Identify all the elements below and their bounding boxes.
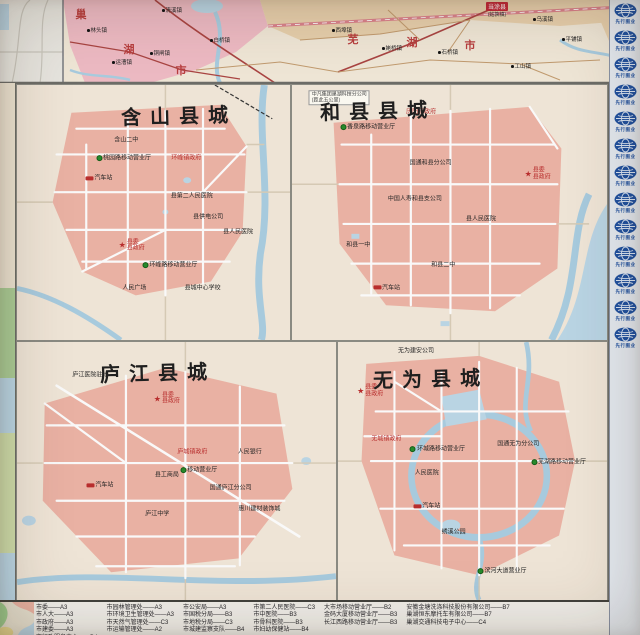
star-icon: ★	[119, 241, 126, 251]
town-label: 林头镇	[87, 26, 107, 34]
publisher-badge: 先行图业	[610, 111, 640, 133]
legend-item: 市国税分局——B3	[183, 612, 244, 619]
mobile-dot-icon	[96, 155, 102, 161]
town-label: 平铺镇	[562, 35, 582, 43]
station-rect-icon	[413, 504, 421, 508]
globe-logo-icon	[614, 219, 637, 234]
town-label: 姥桥镇	[382, 44, 402, 52]
publisher-badge: 先行图业	[610, 138, 640, 160]
adjacent-sheet-edge	[0, 83, 15, 601]
edge-water-patch-2	[0, 553, 15, 601]
inset-row-bottom: 庐江县城 庐江医院驻地★县委县政府庐城镇政府人民银行移动营业厅县工商局汽车站国通…	[16, 341, 608, 601]
legend-item: 金码大厦移动营业厅——B3	[324, 612, 397, 619]
star-icon: ★	[154, 394, 161, 404]
globe-logo-icon	[614, 192, 637, 207]
globe-logo-icon	[614, 138, 637, 153]
publisher-badge-label: 先行图业	[616, 181, 636, 187]
region-name-char: 芜	[348, 31, 359, 47]
town-dot-icon	[382, 47, 385, 50]
station-rect-icon	[373, 286, 381, 290]
publisher-badge: 先行图业	[610, 84, 640, 106]
town-label: 乌溪镇	[533, 15, 553, 23]
publisher-badge: 先行图业	[610, 192, 640, 214]
map-label: 国通和县分公司	[410, 160, 452, 167]
station-rect-icon	[85, 176, 93, 180]
publisher-badge: 先行图业	[610, 165, 640, 187]
legend-item: 市中医院——B3	[253, 612, 315, 619]
map-label: 中国人寿和县支公司	[388, 196, 442, 203]
legend-item: 市妇幼保健站——B4	[253, 627, 315, 634]
inset-row-top: 含山县城 含山二中桃园路移动营业厅汽车站环峰镇政府县第二人民医院县供电公司★县委…	[16, 84, 608, 341]
publisher-badge: 先行图业	[610, 3, 640, 25]
town-dot-icon	[112, 61, 115, 64]
region-name-char: 湖	[407, 34, 418, 50]
town-dot-icon	[150, 52, 153, 55]
map-label: 和县二中	[431, 262, 455, 269]
publisher-badge-label: 先行图业	[616, 46, 636, 52]
town-gov-label: 庐城镇政府	[177, 449, 207, 456]
town-label: 运漕镇	[112, 58, 132, 66]
legend-item: 市建委——A3	[36, 627, 98, 634]
publisher-badge: 先行图业	[610, 327, 640, 349]
publisher-badge: 先行图业	[610, 30, 640, 52]
globe-logo-icon	[614, 111, 637, 126]
town-dot-icon	[438, 51, 441, 54]
map-label: 人民银行	[238, 449, 262, 456]
map-label: 绣溪公园	[442, 529, 466, 536]
town-dot-icon	[210, 39, 213, 42]
map-label: 国通庐江分公司	[210, 485, 252, 492]
publisher-badge-label: 先行图业	[616, 154, 636, 160]
panel-hanshan: 含山县城 含山二中桃园路移动营业厅汽车站环峰镇政府县第二人民医院县供电公司★县委…	[16, 84, 291, 341]
panel-title-hanshan: 含山县城	[120, 99, 237, 131]
globe-logo-icon	[614, 273, 637, 288]
publisher-badge: 先行图业	[610, 300, 640, 322]
publisher-badge: 先行图业	[610, 273, 640, 295]
town-label: 白桥镇	[210, 36, 230, 44]
town-dot-icon	[533, 18, 536, 21]
mobile-dot-icon	[531, 459, 537, 465]
panel-wuwei: 无为县城 无为建安公司★县委县政府无城镇政府环城路移动营业厅人民医院国通无为分公…	[337, 341, 608, 601]
legend-item: 市环境卫生管理处——A3	[107, 612, 174, 619]
publisher-badge: 先行图业	[610, 57, 640, 79]
bus-station-label: 汽车站	[85, 176, 112, 183]
legend-item: 巢湖恒东摩托车有限公司——B7	[406, 612, 509, 619]
map-label: 庐江中学	[145, 511, 169, 518]
mobile-dot-icon	[410, 446, 416, 452]
map-label: 和县一中	[346, 242, 370, 249]
regional-map-strip: 清溪镇林头镇运漕镇铜闸镇白桥镇西埠镇姥桥镇石桥镇乌溪镇平铺镇工山镇巢湖市芜湖市当…	[0, 0, 640, 83]
region-name-char: 湖	[124, 41, 135, 57]
map-label: 县城中心学校	[185, 285, 221, 292]
county-gov-label: ★县委县政府	[525, 168, 551, 181]
globe-logo-icon	[614, 57, 637, 72]
mobile-branch-label: 滨河大道营业厅	[478, 568, 527, 576]
mobile-dot-icon	[180, 467, 186, 473]
map-label: 人民广场	[122, 285, 146, 292]
publisher-badge-label: 先行图业	[616, 343, 636, 349]
publisher-badge-label: 先行图业	[616, 73, 636, 79]
legend-column: 安徽金塘洗涤科技股份有限公司——B7巢湖恒东摩托车有限公司——B7巢湖交通科技电…	[406, 605, 509, 635]
panel-lujiang: 庐江县城 庐江医院驻地★县委县政府庐城镇政府人民银行移动营业厅县工商局汽车站国通…	[16, 341, 337, 601]
edge-green-patch	[0, 288, 15, 378]
edge-field-patch	[0, 433, 15, 553]
legend-column: 市公安局——A3市国税分局——B3市地税分局——C3市城建监察支队——B4	[183, 605, 244, 635]
county-boxed-label: 当涂县(姑孰镇)	[486, 2, 508, 18]
globe-logo-icon	[614, 165, 637, 180]
panel-hexian: 和县县城 中凡集团巢湖科技分公司(距此五公里)历阳镇政府香泉路移动营业厅国通和县…	[291, 84, 608, 341]
map-label: 县工商局	[155, 473, 179, 480]
town-dot-icon	[162, 9, 165, 12]
publisher-badge: 先行图业	[610, 219, 640, 241]
publisher-badge-label: 先行图业	[616, 289, 636, 295]
region-name-char: 市	[465, 37, 476, 53]
star-icon: ★	[357, 386, 364, 396]
map-label: 县供电公司	[193, 214, 223, 221]
county-boxed-name: 当涂县	[486, 2, 508, 11]
town-gov-label: 环峰镇政府	[171, 155, 201, 162]
bus-station-label: 汽车站	[373, 285, 400, 292]
legend-column: 大市场移动营业厅——B2金码大厦移动营业厅——B3长江西路移动营业厅——B3	[324, 605, 397, 635]
legend-corner-map-art	[0, 602, 34, 635]
county-boxed-seat: (姑孰镇)	[486, 11, 508, 18]
map-photo: 清溪镇林头镇运漕镇铜闸镇白桥镇西埠镇姥桥镇石桥镇乌溪镇平铺镇工山镇巢湖市芜湖市当…	[0, 0, 640, 635]
legend-columns: 市委——A3市人大——A3市政府——A3市建委——A3市行政服务中心——D4市园…	[36, 605, 607, 635]
mobile-dot-icon	[478, 568, 484, 574]
legend-item: 市城建监察支队——B4	[183, 627, 244, 634]
star-icon: ★	[525, 169, 532, 179]
globe-logo-icon	[614, 30, 637, 45]
town-dot-icon	[511, 65, 514, 68]
legend-item: 市运输管理处——A2	[107, 627, 174, 634]
globe-logo-icon	[614, 246, 637, 261]
town-dot-icon	[332, 29, 335, 32]
mobile-dot-icon	[142, 262, 148, 268]
mobile-branch-label: 芜湖路移动营业厅	[531, 459, 586, 467]
town-label: 石桥镇	[438, 48, 458, 56]
county-gov-label: ★县委县政府	[119, 239, 145, 252]
town-gov-label: 无城镇政府	[371, 436, 401, 443]
mobile-dot-icon	[340, 124, 346, 130]
map-label: 无为建安公司	[398, 349, 434, 356]
map-label: 人民医院	[415, 470, 439, 477]
publisher-badge: 先行图业	[610, 246, 640, 268]
town-dot-icon	[562, 38, 565, 41]
publisher-badge-label: 先行图业	[616, 208, 636, 214]
legend-item: 巢湖交通科技电子中心——C4	[406, 620, 509, 627]
publisher-badge-label: 先行图业	[616, 316, 636, 322]
mobile-branch-label: 香泉路移动营业厅	[340, 124, 395, 132]
legend-column: 市第二人民医院——C3市中医院——B3市骨科医院——B3市妇幼保健站——B4	[253, 605, 315, 635]
map-label: 含山二中	[114, 138, 138, 145]
regional-map-art	[0, 0, 640, 83]
region-name-char: 巢	[76, 6, 87, 22]
mobile-branch-label: 移动营业厅	[180, 467, 217, 475]
panel-title-hexian: 和县县城	[320, 94, 437, 126]
town-label: 铜闸镇	[150, 49, 170, 57]
mobile-branch-label: 环城路移动营业厅	[410, 446, 465, 454]
publisher-badge-label: 先行图业	[616, 19, 636, 25]
globe-logo-icon	[614, 3, 637, 18]
publisher-badge-label: 先行图业	[616, 127, 636, 133]
panel-title-lujiang: 庐江县城	[100, 356, 217, 388]
mobile-branch-label: 桃园路移动营业厅	[96, 155, 151, 163]
edge-water-patch	[0, 378, 15, 433]
station-rect-icon	[86, 483, 94, 487]
globe-logo-icon	[614, 300, 637, 315]
index-legend: 市委——A3市人大——A3市政府——A3市建委——A3市行政服务中心——D4市园…	[0, 600, 609, 635]
publisher-badge-label: 先行图业	[616, 262, 636, 268]
map-label: 县人民医院	[223, 229, 253, 236]
map-label: 国通无为分公司	[497, 442, 539, 449]
bus-station-label: 汽车站	[413, 504, 440, 511]
globe-logo-icon	[614, 327, 637, 342]
publisher-badge-strip: 先行图业先行图业先行图业先行图业先行图业先行图业先行图业先行图业先行图业先行图业…	[609, 0, 640, 635]
map-label: 县人民医院	[466, 217, 496, 224]
county-gov-label: ★县委县政府	[154, 392, 180, 405]
town-label: 清溪镇	[162, 6, 182, 14]
publisher-badge-label: 先行图业	[616, 100, 636, 106]
mobile-branch-label: 环峰路移动营业厅	[142, 262, 197, 270]
panel-title-wuwei: 无为县城	[373, 361, 490, 393]
inset-panels-frame: 含山县城 含山二中桃园路移动营业厅汽车站环峰镇政府县第二人民医院县供电公司★县委…	[15, 83, 609, 600]
map-label: 县第二人民医院	[171, 194, 213, 201]
legend-item: 长江西路移动营业厅——B3	[324, 620, 397, 627]
publisher-badge-label: 先行图业	[616, 235, 636, 241]
legend-column: 市园林管理处——A3市环境卫生管理处——A3市天然气管理处——C3市运输管理处—…	[107, 605, 174, 635]
legend-column: 市委——A3市人大——A3市政府——A3市建委——A3市行政服务中心——D4	[36, 605, 98, 635]
map-label: 惠川建材装饰城	[238, 506, 280, 513]
bus-station-label: 汽车站	[86, 483, 113, 490]
town-dot-icon	[87, 29, 90, 32]
globe-logo-icon	[614, 84, 637, 99]
region-name-char: 市	[176, 62, 187, 78]
town-label: 工山镇	[511, 62, 531, 70]
legend-item: 市人大——A3	[36, 612, 98, 619]
